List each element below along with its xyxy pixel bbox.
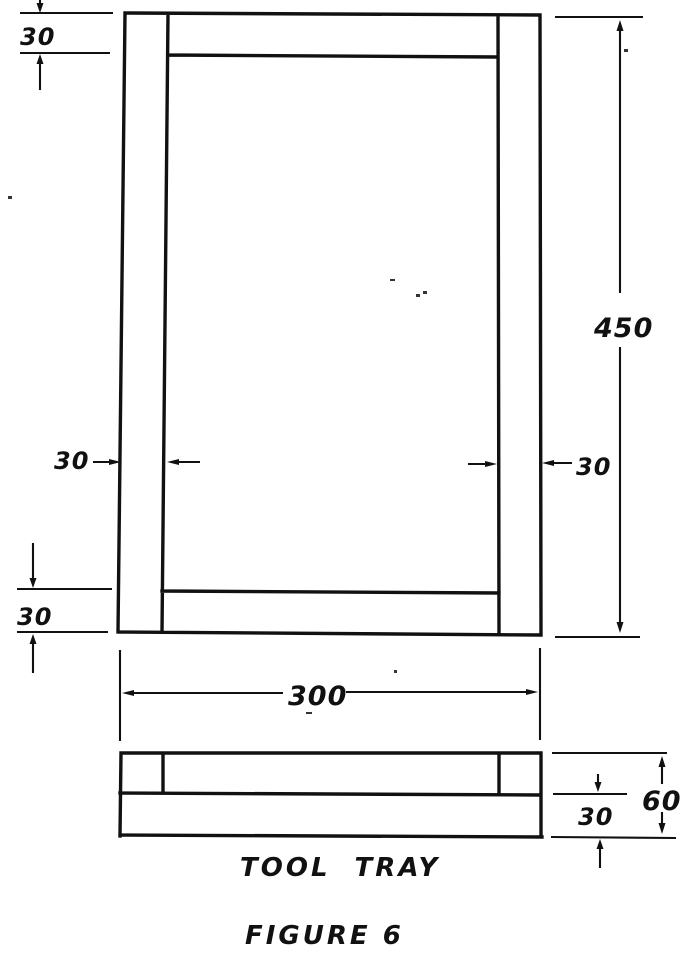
figure-title: TOOL TRAY bbox=[240, 853, 440, 883]
dim-length-label: 450 bbox=[593, 313, 653, 344]
plan-view bbox=[118, 13, 541, 635]
dim-top-rail-label: 30 bbox=[20, 23, 55, 51]
dim-left-rail-label: 30 bbox=[54, 447, 89, 475]
side-view bbox=[120, 753, 542, 837]
dim-right-rail-label: 30 bbox=[576, 453, 611, 481]
dim-width-label: 300 bbox=[288, 681, 347, 712]
dimension-lines bbox=[33, 0, 662, 868]
dim-overall-height-label: 60 bbox=[642, 786, 682, 817]
drawing-sheet: 30 30 30 30 450 300 30 60 TOOL TRAY FIGU… bbox=[0, 0, 694, 966]
dim-base-thickness-label: 30 bbox=[578, 803, 613, 831]
dim-bottom-rail-label: 30 bbox=[17, 603, 52, 631]
right-rail-dim-shafts bbox=[468, 463, 572, 464]
plan-view-outline bbox=[118, 13, 541, 635]
tool-tray-figure: 30 30 30 30 450 300 30 60 TOOL TRAY FIGU… bbox=[0, 0, 694, 966]
extension-lines bbox=[17, 13, 676, 838]
figure-caption: FIGURE 6 bbox=[245, 921, 404, 951]
scan-specks bbox=[8, 49, 628, 714]
side-view-outline bbox=[120, 753, 542, 837]
